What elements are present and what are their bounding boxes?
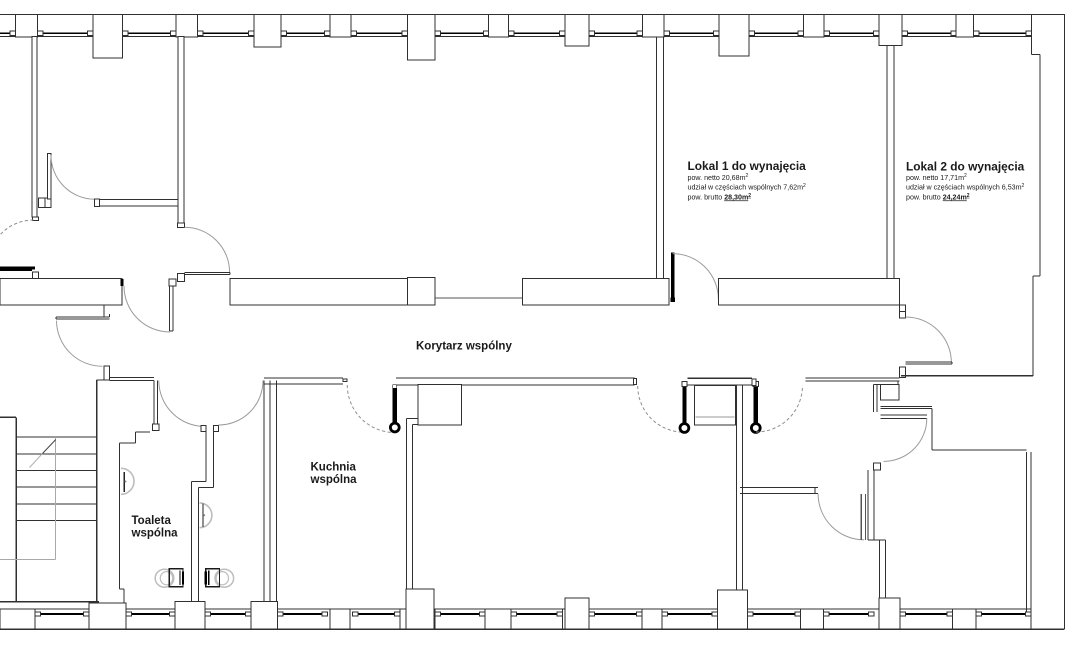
svg-text:Korytarz wspólny: Korytarz wspólny bbox=[416, 341, 512, 353]
svg-text:wspólna: wspólna bbox=[310, 474, 358, 486]
svg-text:Kuchnia: Kuchnia bbox=[311, 461, 357, 473]
svg-text:pow. brutto 28,30m2: pow. brutto 28,30m2 bbox=[688, 193, 752, 202]
svg-text:udział w częściach wspólnych 6: udział w częściach wspólnych 6,53m2 bbox=[906, 183, 1025, 192]
svg-text:Lokal 2 do wynajęcia: Lokal 2 do wynajęcia bbox=[906, 159, 1025, 173]
svg-text:udział w częściach wspólnych 7: udział w częściach wspólnych 7,62m2 bbox=[688, 183, 807, 192]
svg-text:Lokal 1 do wynajęcia: Lokal 1 do wynajęcia bbox=[688, 159, 807, 173]
svg-text:pow. brutto 24,24m2: pow. brutto 24,24m2 bbox=[906, 193, 970, 202]
svg-text:pow. netto 17,71m2: pow. netto 17,71m2 bbox=[906, 173, 967, 182]
svg-text:pow. netto 20,68m2: pow. netto 20,68m2 bbox=[688, 173, 749, 182]
svg-text:Toaleta: Toaleta bbox=[132, 515, 172, 527]
svg-text:wspólna: wspólna bbox=[131, 528, 179, 540]
